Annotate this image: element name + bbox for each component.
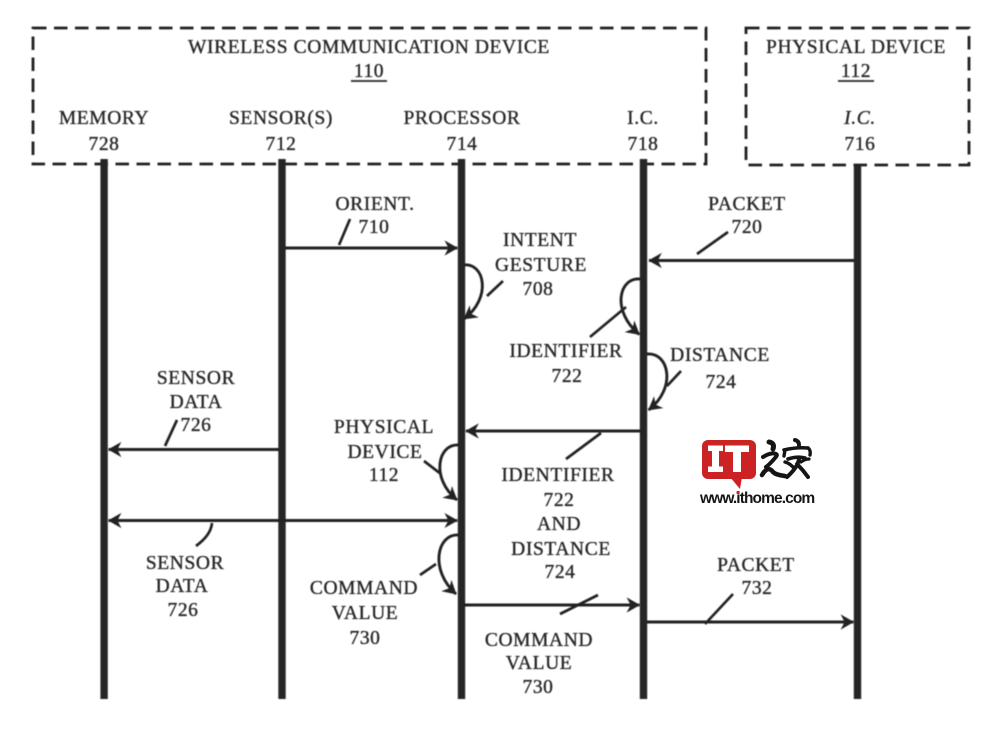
svg-text:INTENT: INTENT — [503, 230, 577, 251]
svg-text:AND: AND — [537, 514, 581, 535]
svg-text:730: 730 — [522, 677, 553, 698]
svg-text:714: 714 — [446, 134, 477, 155]
svg-text:110: 110 — [354, 61, 384, 82]
svg-text:724: 724 — [705, 372, 736, 393]
svg-text:708: 708 — [522, 279, 553, 300]
svg-text:IDENTIFIER: IDENTIFIER — [509, 341, 622, 362]
svg-text:ORIENT.: ORIENT. — [335, 194, 414, 215]
svg-text:IDENTIFIER: IDENTIFIER — [501, 465, 614, 486]
svg-text:732: 732 — [741, 578, 772, 599]
svg-text:722: 722 — [551, 366, 582, 387]
svg-text:728: 728 — [88, 134, 119, 155]
svg-text:I.C.: I.C. — [843, 108, 876, 129]
svg-text:www.ithome.com: www.ithome.com — [699, 490, 814, 507]
svg-text:710: 710 — [358, 217, 389, 238]
svg-text:718: 718 — [627, 134, 658, 155]
svg-text:COMMAND: COMMAND — [485, 630, 593, 651]
svg-text:112: 112 — [369, 465, 399, 486]
svg-text:712: 712 — [265, 134, 296, 155]
svg-text:112: 112 — [841, 61, 871, 82]
svg-text:PHYSICAL DEVICE: PHYSICAL DEVICE — [766, 37, 946, 58]
svg-text:WIRELESS COMMUNICATION DEVICE: WIRELESS COMMUNICATION DEVICE — [188, 37, 550, 58]
svg-text:MEMORY: MEMORY — [59, 108, 149, 129]
svg-text:SENSOR: SENSOR — [146, 553, 224, 574]
svg-text:PHYSICAL: PHYSICAL — [334, 417, 434, 438]
svg-text:716: 716 — [844, 134, 875, 155]
svg-text:724: 724 — [544, 562, 575, 583]
svg-text:PROCESSOR: PROCESSOR — [403, 108, 520, 129]
svg-text:730: 730 — [349, 628, 380, 649]
svg-text:PACKET: PACKET — [717, 555, 795, 576]
svg-text:PACKET: PACKET — [708, 194, 786, 215]
svg-text:DATA: DATA — [156, 576, 209, 597]
svg-text:COMMAND: COMMAND — [310, 578, 418, 599]
svg-text:726: 726 — [180, 415, 211, 436]
svg-text:DATA: DATA — [170, 392, 223, 413]
svg-text:720: 720 — [731, 217, 762, 238]
svg-text:SENSOR(S): SENSOR(S) — [229, 108, 333, 129]
svg-text:I.C.: I.C. — [627, 108, 659, 129]
svg-text:VALUE: VALUE — [506, 653, 573, 674]
svg-text:726: 726 — [167, 600, 198, 621]
svg-text:722: 722 — [543, 490, 574, 511]
svg-text:DEVICE: DEVICE — [347, 442, 422, 463]
svg-text:DISTANCE: DISTANCE — [670, 345, 770, 366]
svg-text:SENSOR: SENSOR — [157, 368, 235, 389]
svg-text:GESTURE: GESTURE — [495, 255, 587, 276]
svg-text:VALUE: VALUE — [332, 603, 399, 624]
svg-text:DISTANCE: DISTANCE — [511, 539, 611, 560]
